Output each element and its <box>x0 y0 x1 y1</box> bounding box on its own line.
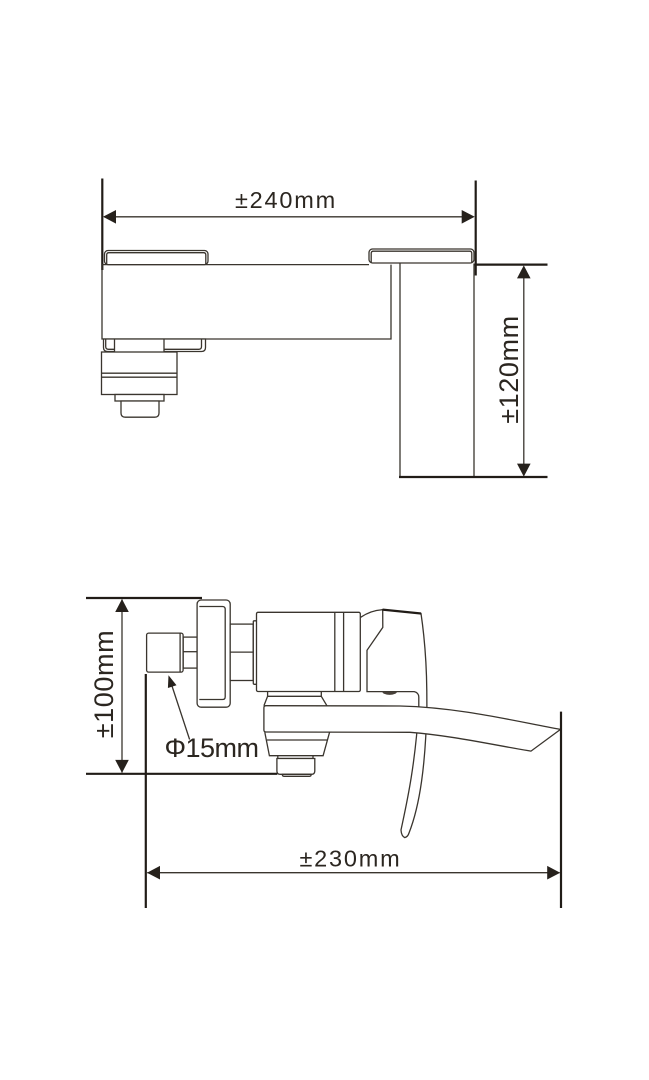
svg-text:±240mm: ±240mm <box>235 187 337 213</box>
svg-text:±100mm: ±100mm <box>89 630 119 738</box>
svg-text:±120mm: ±120mm <box>494 315 524 423</box>
svg-text:±230mm: ±230mm <box>299 846 401 872</box>
svg-text:Φ15mm: Φ15mm <box>164 733 258 763</box>
